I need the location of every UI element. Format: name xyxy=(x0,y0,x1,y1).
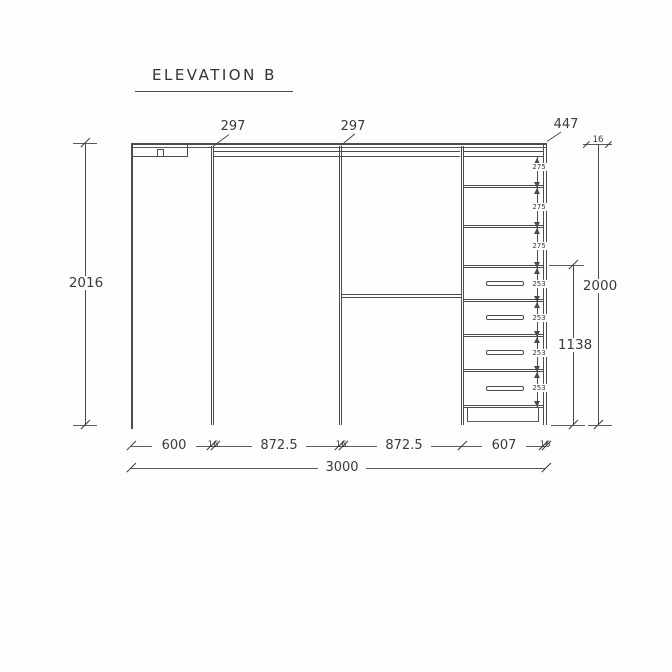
drawer-separator-1 xyxy=(464,299,543,302)
dim-label-shelf-gap-2: 275 xyxy=(527,203,551,211)
tower-shelf-3 xyxy=(464,265,543,268)
drawer-bottom xyxy=(464,405,543,408)
elevation-drawing: ELEVATION B 2016 297 297 447 16 xyxy=(0,0,672,672)
dim-label-drawer-gap-3: 253 xyxy=(527,349,551,357)
top-shelf-tower xyxy=(464,151,543,157)
dim-arrow xyxy=(534,401,540,407)
cabinet-top-edge xyxy=(131,143,546,145)
drawer-handle-2 xyxy=(486,315,524,320)
dim-ext-drawer-top xyxy=(549,265,584,266)
drawer-handle-3 xyxy=(486,350,524,355)
dim-label-drawer-gap-4: 253 xyxy=(527,384,551,392)
dim-arrow xyxy=(534,372,540,378)
dim-label-shelf-gap-1: 275 xyxy=(527,163,551,171)
dim-arrow xyxy=(534,268,540,274)
dim-label-drawer-stack: 1138 xyxy=(550,338,600,352)
leader-line xyxy=(213,134,230,147)
dim-label-drawer-gap-1: 253 xyxy=(527,280,551,288)
dim-label-seg-600: 600 xyxy=(152,439,196,453)
drawer-separator-2 xyxy=(464,334,543,337)
dim-label-total-width: 3000 xyxy=(318,461,366,475)
plinth-left-inset xyxy=(467,408,468,422)
dim-arrow xyxy=(534,302,540,308)
cabinet-left-panel xyxy=(131,143,133,429)
mid-shelf xyxy=(342,294,461,298)
dim-arrow xyxy=(534,337,540,343)
partition-2 xyxy=(339,146,342,425)
dim-arrow xyxy=(534,188,540,194)
top-shelf-bays xyxy=(214,151,460,157)
title-underline xyxy=(135,91,293,92)
dim-label-carcass-height: 2000 xyxy=(575,279,625,293)
dim-ext-bottom-right-2 xyxy=(588,425,612,426)
dim-label-shelf-left: 297 xyxy=(215,120,251,134)
dim-label-seg-16a: 16 xyxy=(206,441,220,450)
drawer-handle-1 xyxy=(486,281,524,286)
dim-label-seg-872b: 872.5 xyxy=(377,439,431,453)
drawing-title: ELEVATION B xyxy=(152,66,277,84)
dim-label-drawer-gap-2: 253 xyxy=(527,314,551,322)
dim-label-shelf-right: 297 xyxy=(335,120,371,134)
dim-label-seg-607: 607 xyxy=(482,439,526,453)
dim-arrow xyxy=(534,228,540,234)
plinth-bottom xyxy=(467,421,539,422)
drawer-handle-4 xyxy=(486,386,524,391)
dim-label-seg-16c: 16 xyxy=(538,441,552,450)
tower-shelf-2 xyxy=(464,225,543,228)
dim-label-seg-872a: 872.5 xyxy=(252,439,306,453)
plinth-right-inset xyxy=(538,408,539,422)
dim-ext-bottom-right-1 xyxy=(551,425,585,426)
drawer-separator-3 xyxy=(464,369,543,372)
dim-label-seg-16b: 16 xyxy=(334,441,348,450)
partition-1 xyxy=(211,146,214,425)
dim-label-corner: 447 xyxy=(548,118,584,132)
tower-shelf-1 xyxy=(464,185,543,188)
leader-line xyxy=(546,132,561,142)
dim-label-total-height: 2016 xyxy=(60,276,112,290)
hanging-rail-notch xyxy=(157,149,164,157)
dim-label-shelf-gap-3: 275 xyxy=(527,242,551,250)
